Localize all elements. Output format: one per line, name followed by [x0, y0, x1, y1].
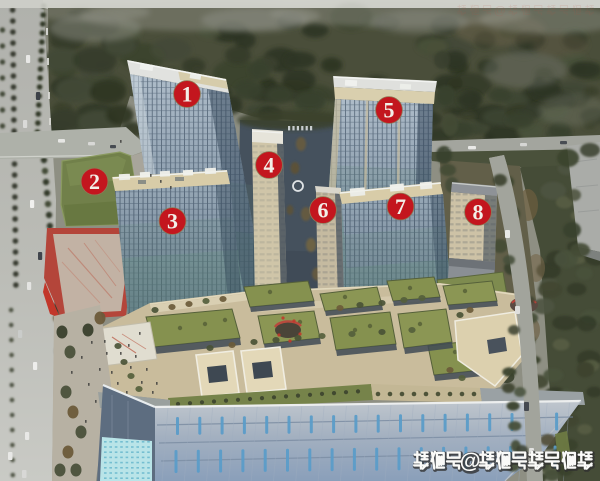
svg-text:1: 1	[182, 82, 193, 107]
svg-text:7: 7	[395, 194, 406, 219]
svg-text:5: 5	[384, 98, 395, 123]
svg-text:4: 4	[264, 153, 275, 178]
svg-text:2: 2	[89, 169, 100, 194]
svg-text:3: 3	[167, 209, 178, 234]
svg-text:@: @	[494, 3, 506, 17]
svg-text:@: @	[460, 449, 481, 473]
svg-text:6: 6	[318, 198, 329, 223]
svg-text:8: 8	[473, 200, 484, 225]
